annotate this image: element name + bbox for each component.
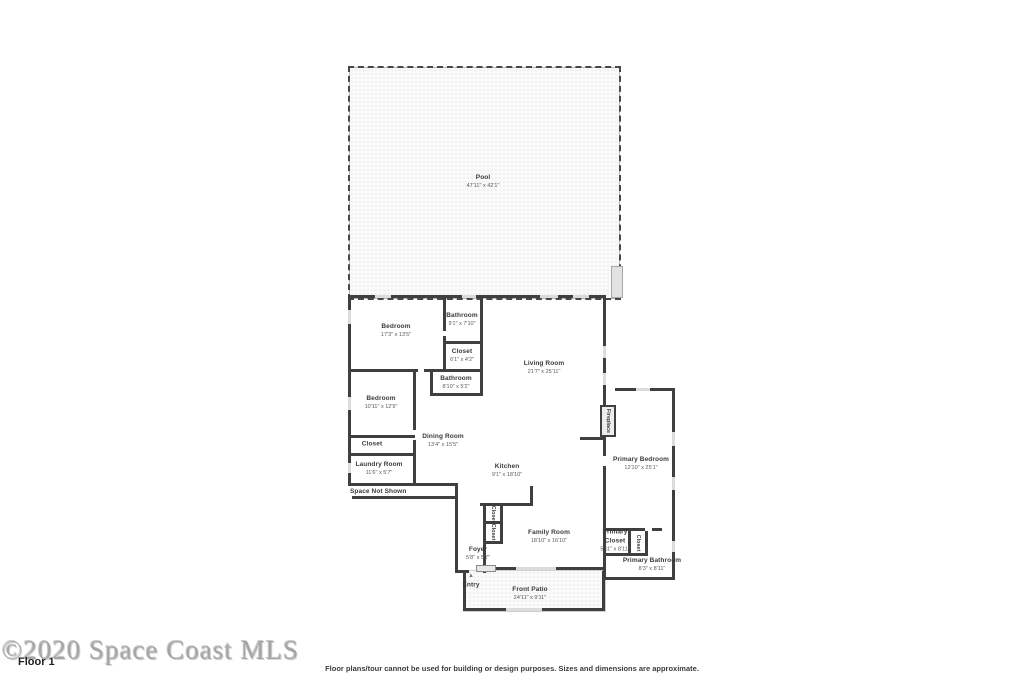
room-label-living: Living Room 21'7" x 25'11" — [524, 360, 564, 376]
wall — [443, 341, 483, 344]
room-name: Bathroom — [440, 375, 472, 384]
room-name: Bedroom — [365, 395, 398, 404]
room-label-primary-closet: Primary Closet 5'11" x 8'11" — [600, 529, 630, 554]
window-marker — [516, 567, 556, 570]
pool-equipment-pad — [611, 266, 623, 298]
room-dims: 17'3" x 13'5" — [381, 332, 411, 339]
room-dims: 9'1" x 18'10" — [492, 472, 522, 479]
room-dims: 8'3" x 8'11" — [623, 566, 681, 573]
room-name: Entry — [462, 582, 479, 591]
wall — [483, 541, 503, 544]
window-marker — [603, 373, 606, 385]
window-marker — [348, 310, 351, 324]
room-name: Kitchen — [492, 463, 522, 472]
wall — [443, 369, 483, 372]
room-name: Family Room — [528, 529, 570, 538]
window-marker — [540, 295, 558, 298]
wall — [603, 438, 606, 456]
room-name: Dining Room — [422, 433, 464, 442]
disclaimer-text: Floor plans/tour cannot be used for buil… — [0, 664, 1024, 673]
window-marker — [462, 295, 476, 298]
room-dims: 12'10" x 25'1" — [613, 465, 669, 472]
wall — [652, 528, 662, 531]
room-dims: 18'10" x 16'10" — [528, 538, 570, 545]
room-label-foyer: Foyer 5'8" x 5'7" — [466, 546, 490, 562]
window-marker — [375, 295, 391, 298]
window-marker — [636, 388, 650, 391]
window-marker — [603, 346, 606, 358]
room-name: Space Not Shown — [350, 488, 406, 497]
window-marker — [348, 397, 351, 410]
room-label-bedroom-top: Bedroom 17'3" x 13'5" — [381, 323, 411, 339]
room-dims: 6'1" x 4'2" — [450, 357, 474, 364]
room-label-closet-primary: Closet — [635, 535, 641, 552]
room-dims: 13'4" x 15'5" — [422, 442, 464, 449]
room-dims: 47'11" x 42'1" — [467, 183, 500, 190]
room-label-kitchen: Kitchen 9'1" x 18'10" — [492, 463, 522, 479]
room-label-closet-kitchen-2: Closet — [490, 524, 496, 541]
wall — [605, 577, 675, 580]
room-dims: 24'11" x 9'11" — [512, 595, 547, 602]
wall — [424, 369, 446, 372]
window-marker — [573, 295, 589, 298]
room-name: Laundry Room — [355, 461, 402, 470]
entry-arrow-icon: ▲ — [468, 573, 474, 579]
room-label-bathroom-top: Bathroom 9'1" x 7'10" — [446, 312, 478, 328]
room-name: Front Patio — [512, 586, 547, 595]
floor-plan: ▲ Pool 47'11" x 42'1" Bedroom 17'3" x 13… — [0, 0, 1024, 683]
room-dims: 21'7" x 25'11" — [524, 369, 564, 376]
window-marker — [348, 463, 351, 473]
wall — [483, 506, 486, 544]
room-label-laundry: Laundry Room 11'6" x 5'7" — [355, 461, 402, 477]
wall — [348, 453, 415, 456]
wall — [500, 506, 503, 544]
room-name: Closet — [450, 348, 474, 357]
wall — [603, 466, 606, 578]
room-dims: 5'11" x 8'11" — [600, 546, 630, 553]
wall — [455, 570, 469, 573]
wall — [348, 435, 415, 438]
room-label-entry: Entry — [462, 582, 479, 591]
room-label-closet-kitchen-1: Closet — [490, 506, 496, 523]
room-name: Closet — [362, 441, 382, 450]
wall — [480, 295, 483, 395]
room-label-bathroom-mid: Bathroom 8'10" x 5'2" — [440, 375, 472, 391]
window-marker — [672, 541, 675, 552]
room-name: Living Room — [524, 360, 564, 369]
room-name: Primary Closet — [600, 529, 630, 547]
room-dims: 5'8" x 5'7" — [466, 555, 490, 562]
room-name: Pool — [467, 174, 500, 183]
room-label-front-patio: Front Patio 24'11" x 9'11" — [512, 586, 547, 602]
wall — [348, 369, 418, 372]
wall — [430, 393, 483, 396]
room-name: Foyer — [466, 546, 490, 555]
room-name: Bathroom — [446, 312, 478, 321]
room-name: Primary Bathroom — [623, 557, 681, 566]
room-dims: 11'6" x 5'7" — [355, 470, 402, 477]
wall — [463, 571, 466, 611]
room-label-closet-bedroom: Closet — [362, 441, 382, 450]
room-dims: 10'11" x 12'9" — [365, 404, 398, 411]
wall — [443, 344, 446, 372]
wall — [413, 440, 416, 483]
room-label-dining: Dining Room 13'4" x 15'5" — [422, 433, 464, 449]
wall — [480, 503, 533, 506]
window-marker — [506, 608, 542, 611]
room-label-closet-hall: Closet 6'1" x 4'2" — [450, 348, 474, 364]
room-name: Primary Bedroom — [613, 456, 669, 465]
room-label-primary-bedroom: Primary Bedroom 12'10" x 25'1" — [613, 456, 669, 472]
entry-door-swing — [476, 565, 496, 572]
wall — [348, 483, 458, 486]
wall — [455, 483, 458, 573]
window-marker — [672, 477, 675, 490]
room-label-pool: Pool 47'11" x 42'1" — [467, 174, 500, 190]
room-label-fireplace: Fireplace — [605, 409, 611, 433]
room-label-space-not-shown: Space Not Shown — [350, 488, 406, 497]
room-dims: 8'10" x 5'2" — [440, 384, 472, 391]
room-dims: 9'1" x 7'10" — [446, 321, 478, 328]
wall — [413, 372, 416, 430]
room-label-primary-bathroom: Primary Bathroom 8'3" x 8'11" — [623, 557, 681, 573]
window-marker — [672, 432, 675, 446]
room-name: Bedroom — [381, 323, 411, 332]
room-label-bedroom-left: Bedroom 10'11" x 12'9" — [365, 395, 398, 411]
room-label-family: Family Room 18'10" x 16'10" — [528, 529, 570, 545]
